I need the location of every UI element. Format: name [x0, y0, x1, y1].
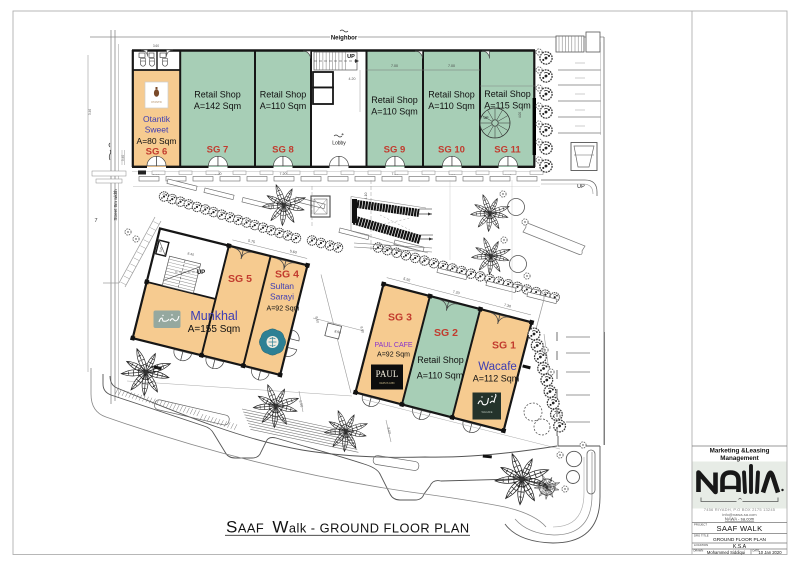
svg-text:Sweet: Sweet	[145, 125, 169, 135]
svg-text:SG 6: SG 6	[146, 147, 168, 158]
svg-text:A=142 Sqm: A=142 Sqm	[194, 101, 241, 111]
svg-text:Mohammed Siddiqui: Mohammed Siddiqui	[707, 550, 745, 555]
svg-text:DRG TITLE: DRG TITLE	[694, 534, 709, 538]
svg-text:10 Jan 2020: 10 Jan 2020	[758, 550, 782, 555]
svg-text:SAAF WALK: SAAF WALK	[717, 524, 763, 533]
svg-text:Retail Shop: Retail Shop	[417, 355, 464, 365]
svg-text:Wacafe: Wacafe	[478, 361, 517, 373]
svg-text:PROJECT: PROJECT	[694, 523, 707, 527]
svg-text:A=110 Sqm: A=110 Sqm	[371, 107, 418, 117]
svg-text:A=115 Sqm: A=115 Sqm	[484, 101, 531, 111]
svg-text:WACAFE: WACAFE	[482, 410, 493, 414]
svg-text:A=80 Sqm: A=80 Sqm	[137, 136, 177, 146]
svg-text:Retail Shop: Retail Shop	[484, 89, 531, 99]
svg-text:Otantik: Otantik	[143, 114, 171, 124]
svg-text:3.60: 3.60	[153, 44, 159, 48]
svg-text:Sultan: Sultan	[270, 281, 294, 291]
svg-text:Management: Management	[720, 455, 759, 462]
svg-text:UP: UP	[484, 116, 490, 120]
svg-text:A=112 Sqm: A=112 Sqm	[473, 374, 520, 384]
svg-text:SG 3: SG 3	[388, 312, 412, 324]
svg-text:Retail Shop: Retail Shop	[371, 95, 418, 105]
svg-text:7.00: 7.00	[448, 64, 455, 68]
svg-text:UP: UP	[347, 54, 355, 60]
svg-text:A=155 Sqm: A=155 Sqm	[188, 324, 241, 335]
svg-text:PAUL CAFE: PAUL CAFE	[374, 342, 412, 349]
svg-text:5.40: 5.40	[121, 155, 125, 161]
svg-text:4.00: 4.00	[518, 112, 522, 118]
svg-text:SG 10: SG 10	[438, 145, 465, 156]
svg-text:A=110 Sqm: A=110 Sqm	[260, 101, 307, 111]
svg-text:Marketing &Leasing: Marketing &Leasing	[710, 448, 770, 455]
svg-text:Street 8m width: Street 8m width	[113, 189, 118, 221]
svg-text:DRAWN: DRAWN	[694, 549, 704, 553]
svg-text:LOCATION: LOCATION	[694, 543, 708, 547]
svg-text:7.00: 7.00	[391, 64, 398, 68]
svg-text:Retail Shop: Retail Shop	[194, 90, 241, 100]
svg-text:UP: UP	[197, 270, 205, 276]
svg-text:UP: UP	[577, 184, 585, 190]
svg-text:OTANTIK: OTANTIK	[151, 100, 162, 104]
svg-text:SG 11: SG 11	[494, 145, 521, 156]
svg-text:SG 9: SG 9	[384, 145, 406, 156]
svg-text:SG 2: SG 2	[434, 327, 458, 339]
svg-text:7.20: 7.20	[280, 172, 287, 176]
svg-text:Retail Shop: Retail Shop	[260, 90, 307, 100]
svg-text:3.46: 3.46	[88, 109, 92, 115]
svg-text:Retail Shop: Retail Shop	[428, 90, 475, 100]
svg-text:Neighbor: Neighbor	[331, 36, 358, 42]
svg-text:GROUND FLOOR PLAN: GROUND FLOOR PLAN	[713, 537, 767, 543]
svg-text:Munkhal: Munkhal	[190, 309, 237, 323]
svg-text:A=110 Sqm: A=110 Sqm	[428, 101, 475, 111]
svg-text:SG 8: SG 8	[272, 145, 294, 156]
svg-text:SG 7: SG 7	[207, 145, 229, 156]
svg-text:SG 1: SG 1	[492, 340, 516, 352]
svg-text:PAUL: PAUL	[376, 369, 399, 379]
svg-text:A=92 Sqm: A=92 Sqm	[377, 352, 410, 359]
svg-text:NAWA - sa.com: NAWA - sa.com	[725, 517, 755, 522]
svg-text:SG 4: SG 4	[275, 269, 299, 281]
svg-text:4.20: 4.20	[349, 77, 356, 81]
svg-text:Sarayi: Sarayi	[270, 292, 294, 302]
svg-text:Lobby: Lobby	[332, 141, 346, 147]
svg-text:SAAF Walk - GROUND FLOOR PLAN: SAAF Walk - GROUND FLOOR PLAN	[226, 518, 470, 537]
svg-text:7: 7	[94, 218, 97, 224]
svg-text:DEPUIS 1889: DEPUIS 1889	[380, 382, 396, 385]
svg-text:A=110 Sqm: A=110 Sqm	[417, 371, 464, 381]
svg-text:SG 5: SG 5	[228, 273, 252, 285]
svg-text:A=92 Sqm: A=92 Sqm	[267, 306, 300, 313]
